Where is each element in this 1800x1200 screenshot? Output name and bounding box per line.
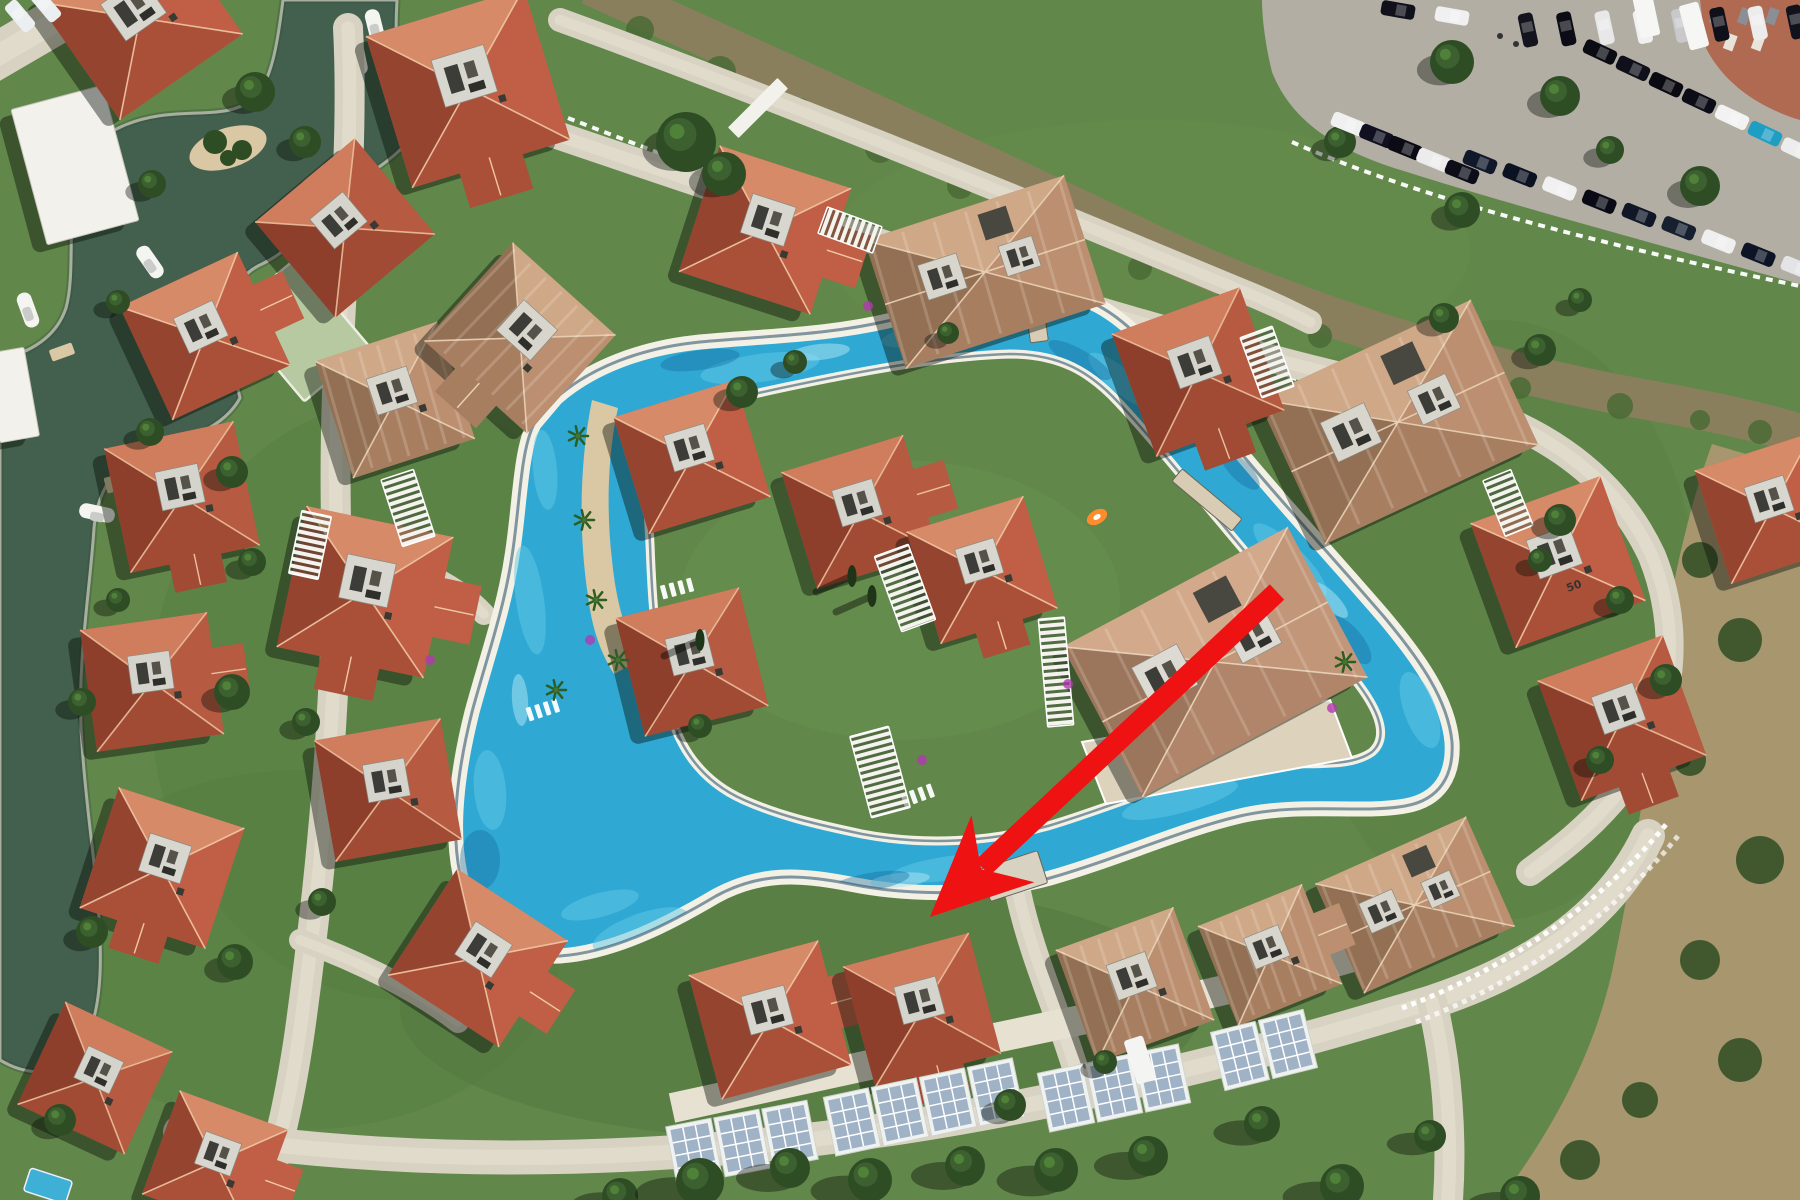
aerial-screenshot: 50 50 [0,0,1800,1200]
bougainvillea [425,655,435,665]
aerial-photo: 50 [0,0,1800,1200]
person-dot [1513,41,1519,47]
person-dot [1497,33,1503,39]
villa-roof [314,718,461,861]
bougainvillea [863,301,873,311]
bougainvillea [917,755,927,765]
bougainvillea [585,635,595,645]
bougainvillea [1327,703,1337,713]
bougainvillea [1063,679,1073,689]
